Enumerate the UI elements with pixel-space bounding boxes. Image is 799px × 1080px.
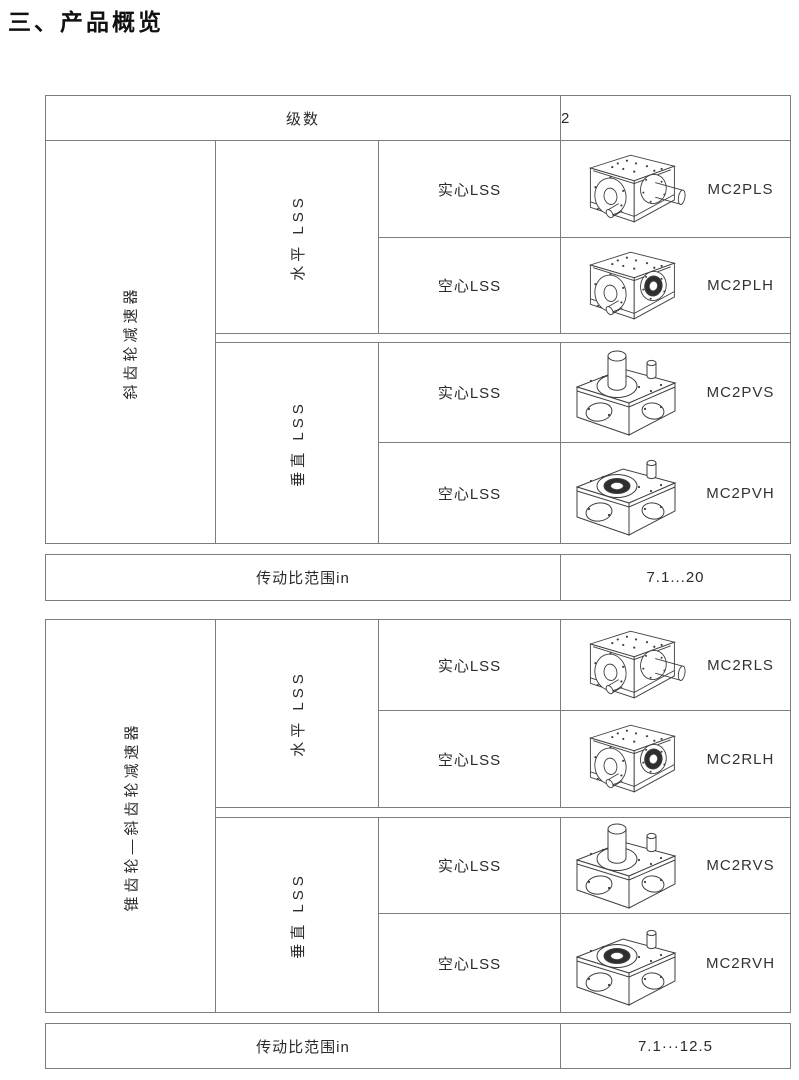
shaft-type-label: 空心LSS — [379, 914, 561, 1013]
gearbox-horizontal-solid-lss-icon — [561, 147, 691, 231]
category-cell: 斜齿轮减速器 — [46, 141, 216, 544]
gearbox-vertical-solid-lss-icon — [561, 347, 691, 439]
model-label: MC2RVH — [691, 955, 790, 972]
shaft-type-label: 空心LSS — [379, 443, 561, 544]
model-cell: MC2PVH — [561, 443, 791, 544]
category-cell: 锥齿轮—斜齿轮减速器 — [46, 620, 216, 1013]
model-label: MC2PLS — [691, 181, 790, 198]
orientation-label: 垂直 LSS — [287, 872, 308, 959]
shaft-type-label: 实心LSS — [379, 620, 561, 711]
helical-reducer-table: 级数 2 斜齿轮减速器 水平 LSS 实心LSS MC2PLS 空心LSS — [45, 95, 790, 544]
gearbox-horizontal-solid-lss-icon — [561, 623, 691, 707]
gearbox-horizontal-hollow-lss-icon — [561, 717, 691, 801]
model-label: MC2PVH — [691, 485, 790, 502]
ratio-range-value: 7.1...20 — [561, 555, 791, 601]
orientation-label: 水平 LSS — [287, 670, 308, 757]
table-row: 传动比范围in 7.1...20 — [46, 555, 791, 601]
model-cell: MC2PVS — [561, 343, 791, 443]
shaft-type-label: 实心LSS — [379, 343, 561, 443]
orientation-label: 垂直 LSS — [287, 400, 308, 487]
model-cell: MC2PLS — [561, 141, 791, 238]
orientation-cell: 垂直 LSS — [216, 343, 379, 544]
shaft-type-label: 空心LSS — [379, 711, 561, 808]
bevel-helical-reducer-table: 锥齿轮—斜齿轮减速器 水平 LSS 实心LSS MC2RLS 空心LSS MC2… — [45, 619, 790, 1013]
shaft-type-label: 实心LSS — [379, 818, 561, 914]
ratio-range-bar: 传动比范围in 7.1···12.5 — [45, 1023, 790, 1069]
stage-count-value: 2 — [561, 96, 791, 141]
ratio-range-label: 传动比范围in — [46, 1024, 561, 1069]
gearbox-vertical-solid-lss-icon — [561, 820, 691, 912]
table-row: 级数 2 — [46, 96, 791, 141]
shaft-type-label: 空心LSS — [379, 238, 561, 334]
ratio-range-value: 7.1···12.5 — [561, 1024, 791, 1069]
page-title: 三、产品概览 — [8, 3, 164, 37]
orientation-cell: 垂直 LSS — [216, 818, 379, 1013]
category-label: 斜齿轮减速器 — [120, 285, 141, 399]
model-cell: MC2RLH — [561, 711, 791, 808]
stage-count-label: 级数 — [46, 96, 561, 141]
table-row: 斜齿轮减速器 水平 LSS 实心LSS MC2PLS — [46, 141, 791, 238]
gearbox-vertical-hollow-lss-icon — [561, 447, 691, 539]
model-label: MC2PVS — [691, 384, 790, 401]
orientation-label: 水平 LSS — [287, 194, 308, 281]
model-label: MC2RLH — [691, 751, 790, 768]
category-label: 锥齿轮—斜齿轮减速器 — [120, 721, 141, 911]
table-row: 锥齿轮—斜齿轮减速器 水平 LSS 实心LSS MC2RLS — [46, 620, 791, 711]
gearbox-horizontal-hollow-lss-icon — [561, 244, 691, 328]
model-label: MC2RLS — [691, 657, 790, 674]
model-label: MC2RVS — [691, 857, 790, 874]
orientation-cell: 水平 LSS — [216, 620, 379, 808]
table-row: 传动比范围in 7.1···12.5 — [46, 1024, 791, 1069]
orientation-cell: 水平 LSS — [216, 141, 379, 334]
model-label: MC2PLH — [691, 277, 790, 294]
model-cell: MC2RLS — [561, 620, 791, 711]
gearbox-vertical-hollow-lss-icon — [561, 917, 691, 1009]
ratio-range-bar: 传动比范围in 7.1...20 — [45, 554, 790, 601]
model-cell: MC2RVS — [561, 818, 791, 914]
model-cell: MC2PLH — [561, 238, 791, 334]
model-cell: MC2RVH — [561, 914, 791, 1013]
ratio-range-label: 传动比范围in — [46, 555, 561, 601]
shaft-type-label: 实心LSS — [379, 141, 561, 238]
